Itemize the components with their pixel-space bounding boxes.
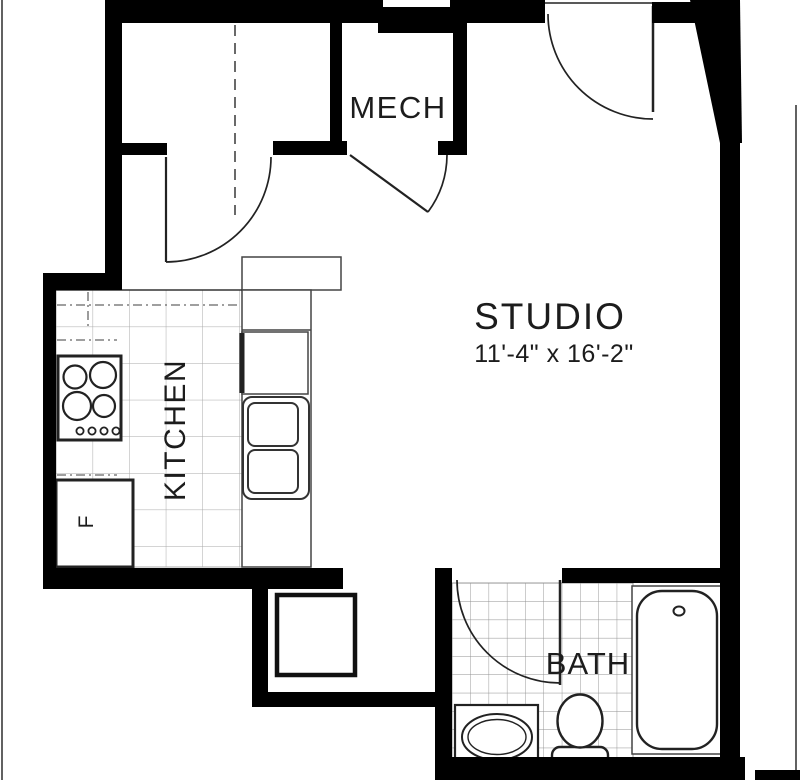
- stove-cooktop: [58, 356, 121, 440]
- wall-top-mid: [450, 0, 545, 23]
- kitchen-sink: [243, 397, 309, 499]
- floor-plan-svg: MECH STUDIO 11'-4" x 16'-2" KITCHEN F BA…: [0, 0, 800, 780]
- toilet-bowl: [558, 695, 603, 748]
- stove-knob-icon: [112, 427, 119, 434]
- burner-icon: [93, 395, 115, 417]
- kitchen-appliance-box: [240, 332, 309, 394]
- burner-icon: [90, 362, 116, 388]
- wall-bottom: [435, 757, 745, 780]
- studio-dimensions: 11'-4" x 16'-2": [474, 340, 633, 368]
- peninsula-counter: [242, 257, 341, 290]
- wall-alcove-bottom: [252, 692, 447, 707]
- wall-closet-left: [105, 23, 122, 290]
- bath-label: BATH: [546, 646, 630, 681]
- tub-drain-icon: [674, 607, 685, 616]
- bathtub: [632, 586, 721, 754]
- wall-vestibule-stub-left: [122, 143, 167, 155]
- wall-kitchen-left: [43, 273, 56, 589]
- kitchen-label: KITCHEN: [159, 359, 192, 501]
- wall-bath-top: [562, 568, 722, 583]
- wall-mech-right: [453, 23, 467, 147]
- stove-knob-icon: [88, 427, 95, 434]
- stove-knob-icon: [100, 427, 107, 434]
- wall-bottom-right-strip: [755, 770, 800, 780]
- wall-vestibule-stub-right: [273, 141, 347, 155]
- mech-label: MECH: [349, 90, 446, 125]
- wall-mech-stub-right: [438, 141, 467, 155]
- refrigerator-label: F: [75, 516, 98, 529]
- wall-kitchen-bottom: [43, 568, 343, 589]
- wall-alcove-left: [252, 589, 268, 707]
- wall-top-left: [105, 0, 383, 23]
- stove-knob-icon: [76, 427, 83, 434]
- utility-washer-box: [277, 595, 355, 675]
- studio-label: STUDIO: [474, 296, 626, 337]
- burner-icon: [64, 366, 87, 389]
- wall-right: [720, 143, 740, 780]
- floor-plan: MECH STUDIO 11'-4" x 16'-2" KITCHEN F BA…: [0, 0, 800, 780]
- wall-bath-left: [435, 568, 452, 773]
- wall-top-mech-notch: [378, 7, 455, 33]
- wall-mech-left: [330, 23, 342, 143]
- burner-icon: [63, 392, 91, 420]
- appliance-door-bar: [240, 333, 245, 393]
